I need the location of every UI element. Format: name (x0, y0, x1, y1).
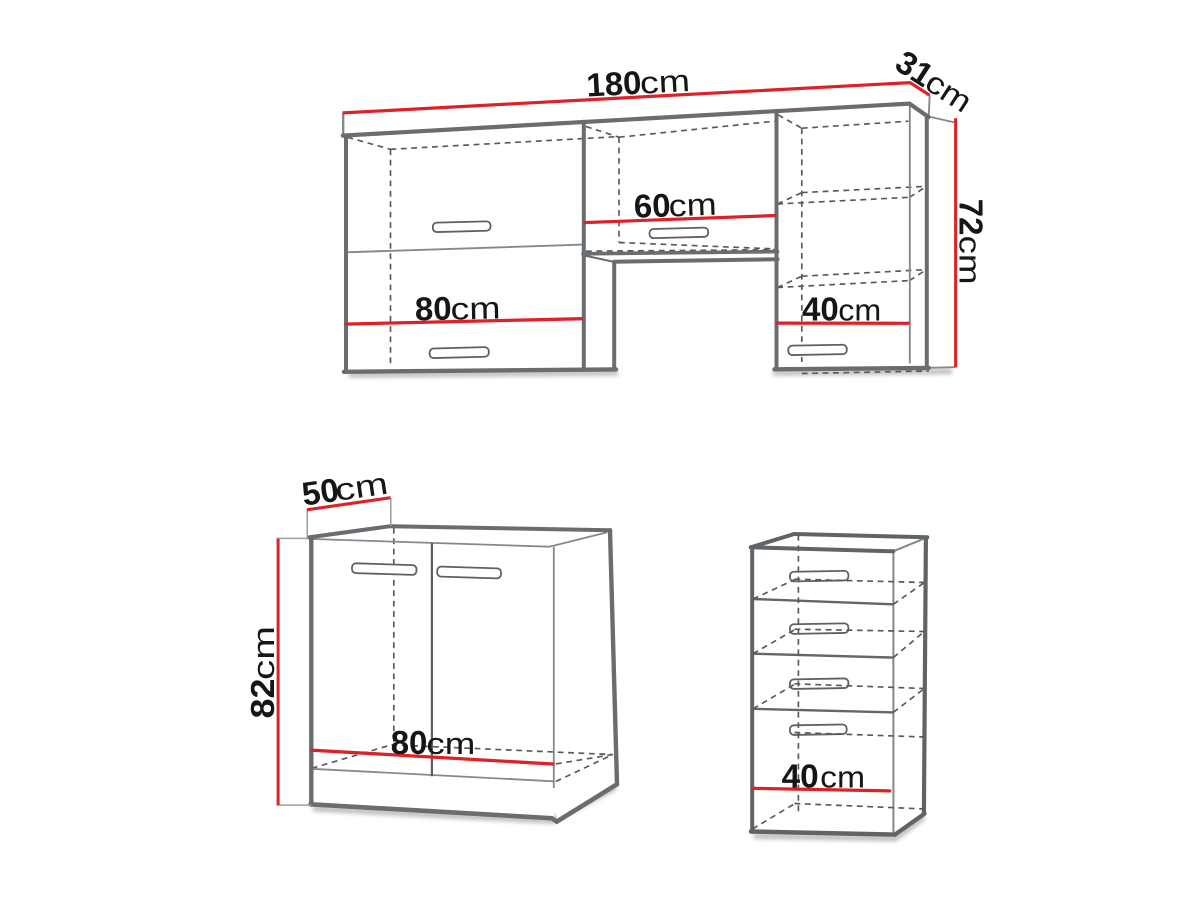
svg-text:80cm: 80cm (414, 288, 501, 327)
svg-text:80cm: 80cm (391, 724, 476, 761)
svg-text:40cm: 40cm (782, 758, 866, 795)
svg-text:60cm: 60cm (633, 185, 717, 225)
svg-text:40cm: 40cm (802, 290, 881, 327)
svg-text:180cm: 180cm (585, 61, 690, 104)
svg-text:72cm: 72cm (952, 199, 989, 285)
svg-text:82cm: 82cm (244, 626, 281, 719)
